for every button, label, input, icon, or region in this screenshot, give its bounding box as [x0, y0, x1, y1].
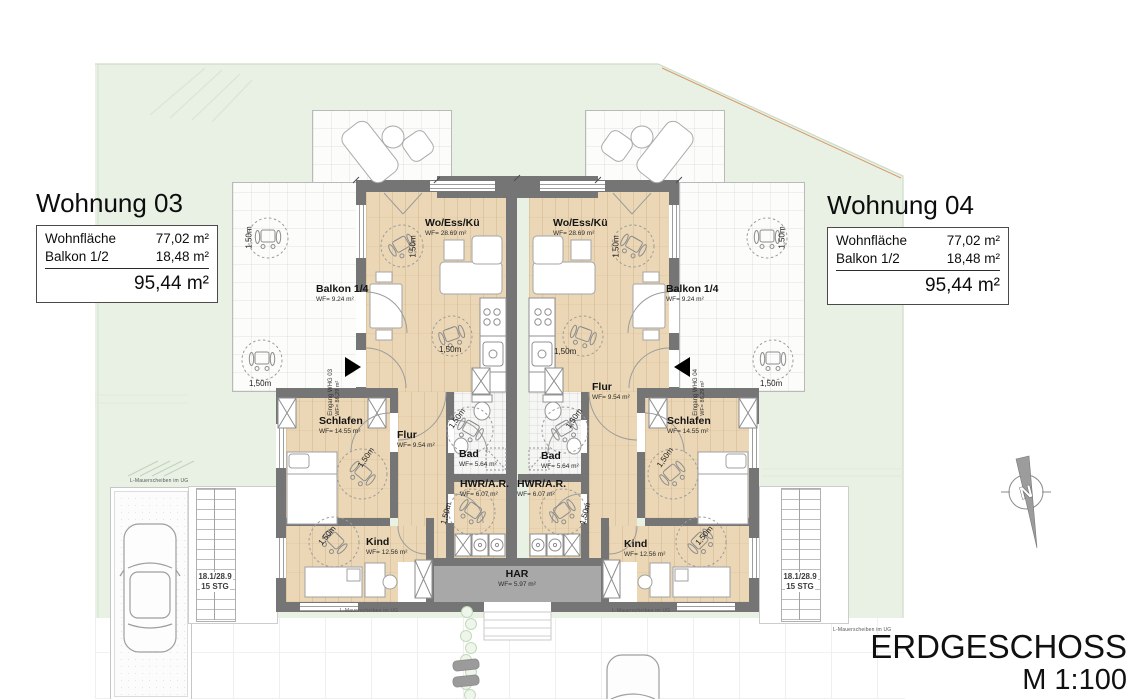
car-icon: [120, 524, 180, 652]
entrance-name: Eingang WHG 03: [327, 346, 335, 416]
turning-radius-label: 1,50m: [760, 379, 782, 388]
scale-label: M 1:100: [870, 665, 1127, 695]
door-swings: [351, 193, 684, 554]
entrance-area: WF= 86,29 m²: [335, 346, 342, 416]
bed-schlafen-left: [287, 452, 337, 524]
stair-label-left: 18.1/28.9 15 STG: [194, 572, 236, 592]
entrance-arrow-icon: [674, 357, 690, 377]
room-label-woessku-left: Wo/Ess/Kü WF= 28.69 m²: [425, 218, 480, 237]
room-label-schlafen-right: Schlafen WF= 14.55 m²: [667, 416, 711, 435]
entrance-area: WF= 86,29 m²: [700, 346, 707, 416]
room-label-hwr-left: HWR/A.R. WF= 6.07 m²: [460, 479, 509, 498]
turning-radius-label: 1,50m: [439, 345, 461, 354]
room-label-kind-left: Kind WF= 12.56 m²: [366, 537, 407, 556]
car-icon: [603, 655, 663, 699]
entrance-label-right: Eingang WHG 04 WF= 86,29 m²: [692, 346, 708, 416]
room-label-balkon-right: Balkon 1/4 WF= 9.24 m²: [666, 284, 719, 303]
table-row: Balkon 1/2 18,48 m²: [45, 248, 209, 269]
room-label-woessku-right: Wo/Ess/Kü WF= 28.69 m²: [553, 218, 608, 237]
turning-radius-label: 1,50m: [249, 379, 271, 388]
apartment-info-left: Wohnung 03 Wohnfläche 77,02 m² Balkon 1/…: [36, 188, 218, 303]
sofa-right: [533, 236, 595, 294]
room-label-balkon-left: Balkon 1/4 WF= 9.24 m²: [316, 284, 369, 303]
turning-radius-label: 1,50m: [778, 226, 787, 248]
table-row: Balkon 1/2 18,48 m²: [836, 250, 1000, 271]
title-block: ERDGESCHOSS M 1:100: [870, 630, 1127, 695]
entrance-name: Eingang WHG 04: [692, 346, 700, 416]
terrace-furniture-left: [338, 118, 436, 187]
north-label: N: [1018, 482, 1035, 504]
total-area: 95,44 m²: [45, 273, 209, 295]
apartment-title: Wohnung 03: [36, 188, 218, 219]
entrance-label-left: Eingang WHG 03 WF= 86,29 m²: [327, 346, 343, 416]
room-label-bad-right: Bad WF= 5.64 m²: [541, 451, 579, 470]
entry-steps: [484, 612, 551, 640]
apartment-title: Wohnung 04: [827, 190, 1009, 221]
apartment-info-right: Wohnung 04 Wohnfläche 77,02 m² Balkon 1/…: [827, 190, 1009, 305]
room-label-bad-left: Bad WF= 5.64 m²: [459, 449, 497, 468]
area-table: Wohnfläche 77,02 m² Balkon 1/2 18,48 m² …: [827, 227, 1009, 305]
room-label-har: HAR WF= 5.97 m²: [494, 569, 540, 588]
dimension-ticks: [353, 175, 682, 183]
turning-radius-label: 1,50m: [409, 235, 418, 257]
floor-title: ERDGESCHOSS: [870, 630, 1127, 665]
floorplan-sheet: N Eingang WHG 03 WF= 86,29 m² Eingang WH…: [0, 0, 1139, 699]
turning-radius-label: 1,50m: [554, 347, 576, 356]
room-label-kind-right: Kind WF= 12.56 m²: [624, 539, 665, 558]
table-row: Wohnfläche 77,02 m²: [836, 232, 1000, 250]
appliances-left: [455, 534, 505, 556]
sofa-left: [440, 236, 502, 294]
wall-note: L-Mauerscheiben im UG: [612, 608, 670, 614]
wall-note: L-Mauerscheiben im UG: [130, 478, 188, 484]
wall-note: L-Mauerscheiben im UG: [340, 608, 398, 614]
stair-label-right: 18.1/28.9 15 STG: [779, 572, 821, 592]
north-arrow-icon: N: [1001, 456, 1051, 548]
room-label-hwr-right: HWR/A.R. WF= 6.07 m²: [517, 479, 566, 498]
appliances-right: [530, 534, 580, 556]
turning-radius-label: 1,50m: [245, 226, 254, 248]
entrance-arrow-icon: [345, 357, 361, 377]
area-table: Wohnfläche 77,02 m² Balkon 1/2 18,48 m² …: [36, 225, 218, 303]
room-label-flur-left: Flur WF= 9.54 m²: [397, 430, 435, 449]
turning-radius-label: 1,50m: [612, 235, 621, 257]
kind-furniture-left: [305, 563, 397, 597]
total-area: 95,44 m²: [836, 275, 1000, 297]
table-row: Wohnfläche 77,02 m²: [45, 230, 209, 248]
terrace-furniture-right: [599, 118, 697, 187]
bed-schlafen-right: [698, 452, 748, 524]
room-label-flur-right: Flur WF= 9.54 m²: [592, 382, 630, 401]
kind-furniture-right: [638, 563, 730, 597]
room-label-schlafen-left: Schlafen WF= 14.55 m²: [319, 416, 363, 435]
